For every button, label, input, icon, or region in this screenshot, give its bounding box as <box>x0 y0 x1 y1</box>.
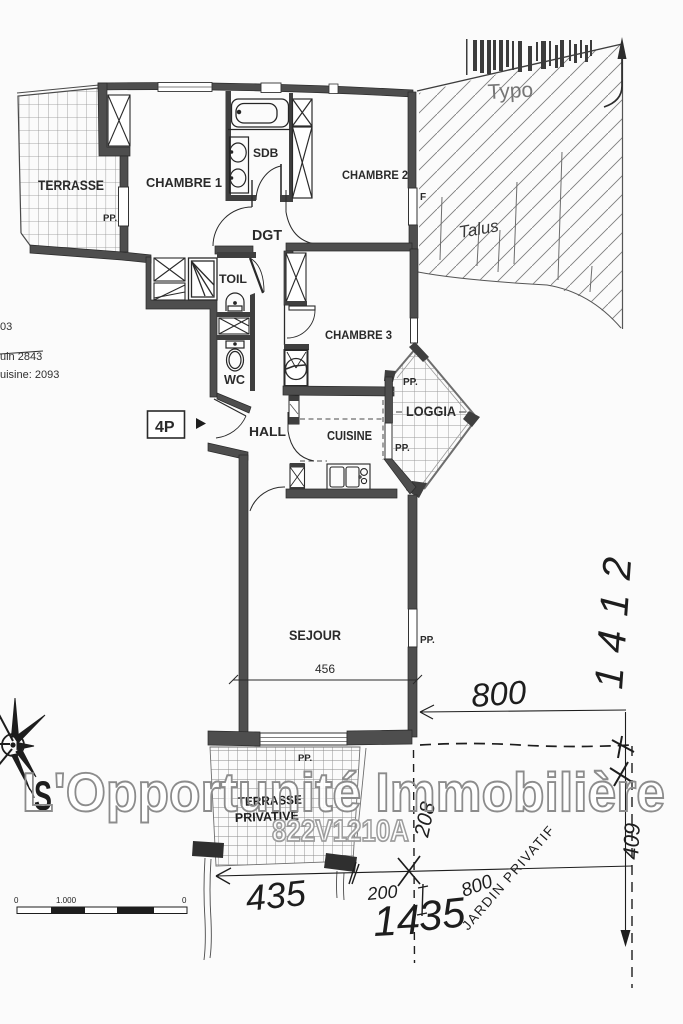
svg-text:CHAMBRE 1: CHAMBRE 1 <box>146 176 222 190</box>
svg-text:SEJOUR: SEJOUR <box>289 627 341 643</box>
svg-text:F: F <box>420 192 426 203</box>
svg-text:LOGGIA: LOGGIA <box>406 404 456 419</box>
svg-text:WC: WC <box>224 372 246 387</box>
svg-text:456: 456 <box>315 662 335 676</box>
svg-text:PP.: PP. <box>395 443 410 454</box>
svg-text:35: 35 <box>416 888 468 940</box>
svg-text:14: 14 <box>372 896 421 945</box>
svg-text:4P: 4P <box>155 419 175 436</box>
svg-text:822V1210A: 822V1210A <box>272 813 409 848</box>
svg-text:uisine: 2093: uisine: 2093 <box>0 369 59 381</box>
svg-text:PP.: PP. <box>403 377 418 388</box>
svg-text:0: 0 <box>182 896 187 905</box>
svg-text:TOIL: TOIL <box>219 272 247 286</box>
svg-text:03: 03 <box>0 321 12 333</box>
svg-text:CHAMBRE 2: CHAMBRE 2 <box>342 168 408 182</box>
svg-text:1.000: 1.000 <box>56 896 77 905</box>
svg-text:Typo: Typo <box>487 79 534 104</box>
svg-text:SDB: SDB <box>253 146 279 160</box>
svg-text:0: 0 <box>14 896 19 905</box>
svg-text:409: 409 <box>618 822 645 860</box>
svg-text:435: 435 <box>244 872 309 919</box>
svg-text:DGT: DGT <box>252 228 282 244</box>
svg-text:CUISINE: CUISINE <box>327 429 372 443</box>
svg-text:PP.: PP. <box>103 213 117 224</box>
svg-text:PP.: PP. <box>420 635 435 646</box>
svg-text:TERRASSE: TERRASSE <box>38 178 104 193</box>
svg-text:800: 800 <box>470 673 528 714</box>
svg-text:CHAMBRE 3: CHAMBRE 3 <box>325 328 392 342</box>
svg-text:HALL: HALL <box>249 424 286 439</box>
